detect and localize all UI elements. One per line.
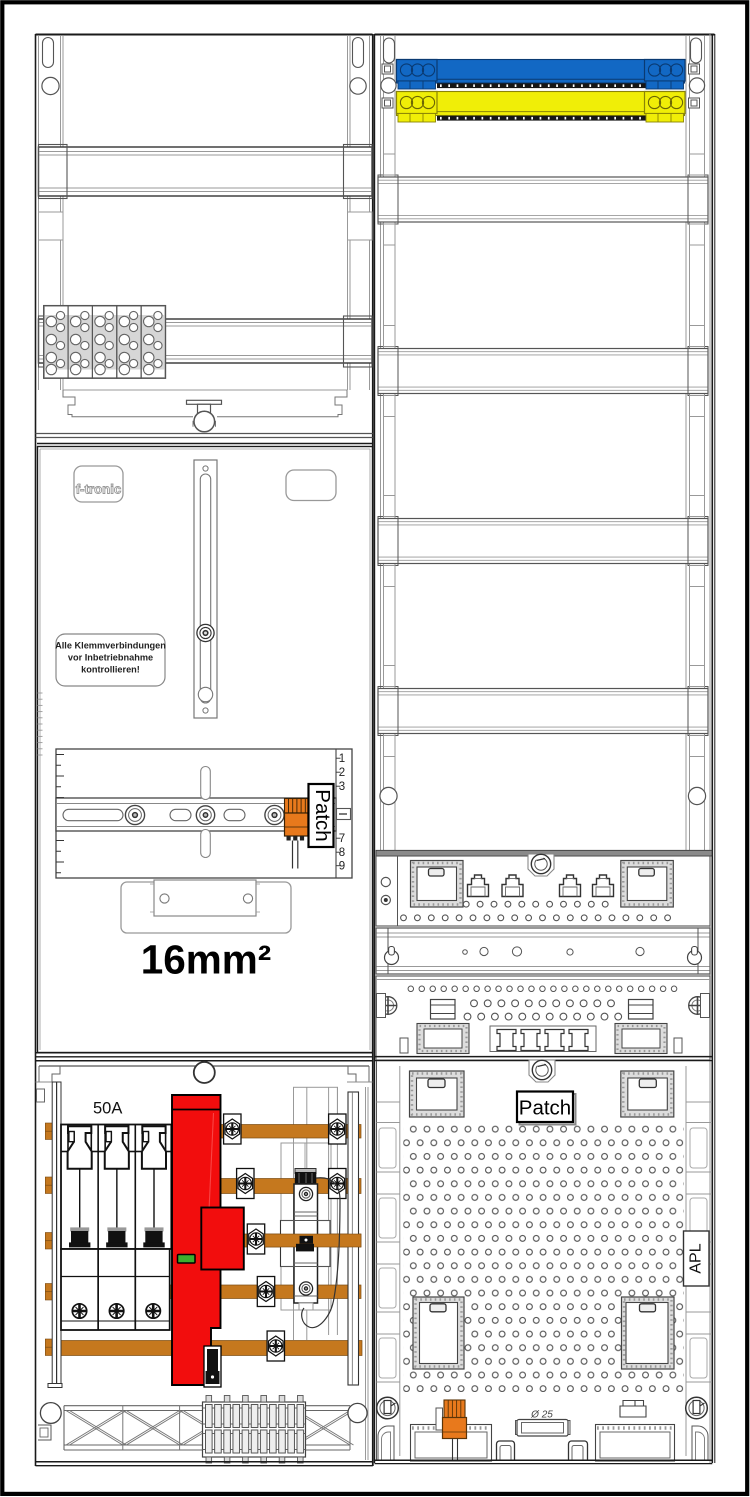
svg-text:Patch: Patch [519, 1097, 571, 1120]
svg-text:f-tronic: f-tronic [76, 482, 121, 497]
svg-text:1: 1 [339, 753, 345, 765]
svg-text:7: 7 [339, 833, 345, 845]
svg-text:vor Inbetriebnahme: vor Inbetriebnahme [68, 653, 153, 663]
svg-text:50A: 50A [93, 1100, 122, 1118]
svg-text:Alle Klemmverbindungen: Alle Klemmverbindungen [55, 641, 166, 651]
svg-text:2: 2 [339, 767, 345, 779]
svg-text:8: 8 [339, 847, 345, 859]
svg-text:3: 3 [339, 781, 345, 793]
svg-text:Patch: Patch [311, 789, 334, 841]
svg-text:Ø 25: Ø 25 [530, 1410, 553, 1421]
svg-text:APL: APL [687, 1243, 704, 1273]
svg-text:9: 9 [339, 861, 345, 873]
svg-text:16mm²: 16mm² [141, 937, 272, 983]
svg-text:kontrollieren!: kontrollieren! [81, 665, 140, 675]
